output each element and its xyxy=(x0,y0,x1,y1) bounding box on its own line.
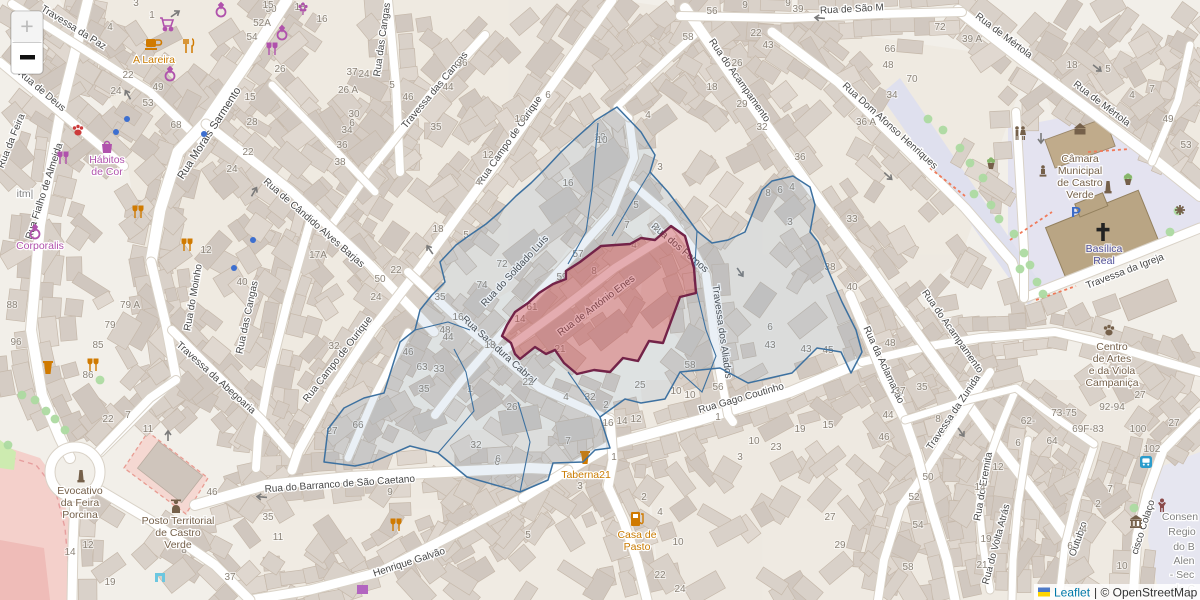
svg-text:Corporalis: Corporalis xyxy=(16,240,64,252)
svg-text:49: 49 xyxy=(152,82,164,93)
svg-text:3: 3 xyxy=(577,481,583,492)
svg-text:24: 24 xyxy=(370,292,382,303)
svg-text:15: 15 xyxy=(262,0,274,11)
svg-text:35: 35 xyxy=(262,512,274,523)
svg-text:46: 46 xyxy=(878,432,890,443)
svg-text:3: 3 xyxy=(657,162,663,173)
svg-text:48: 48 xyxy=(884,338,896,349)
svg-text:88: 88 xyxy=(6,300,18,311)
svg-text:9: 9 xyxy=(742,0,748,11)
svg-text:4: 4 xyxy=(107,22,113,33)
svg-text:18: 18 xyxy=(1066,60,1078,71)
svg-text:54: 54 xyxy=(912,520,924,531)
svg-text:2: 2 xyxy=(1095,499,1101,510)
svg-text:12: 12 xyxy=(200,245,212,256)
svg-text:50: 50 xyxy=(374,274,386,285)
svg-text:58: 58 xyxy=(682,32,694,43)
svg-text:32: 32 xyxy=(328,341,340,352)
svg-text:Casa de: Casa de xyxy=(617,529,656,541)
svg-text:56: 56 xyxy=(712,382,724,393)
svg-text:Pasto: Pasto xyxy=(624,541,651,553)
svg-text:14: 14 xyxy=(974,482,986,493)
svg-text:33: 33 xyxy=(846,214,858,225)
svg-text:12: 12 xyxy=(482,150,494,161)
svg-text:26 A: 26 A xyxy=(338,85,358,96)
svg-text:39: 39 xyxy=(792,4,804,15)
svg-text:58: 58 xyxy=(902,562,914,573)
svg-text:22: 22 xyxy=(654,570,666,581)
svg-text:22: 22 xyxy=(122,70,134,81)
svg-text:Verde: Verde xyxy=(1066,189,1094,201)
svg-text:79 A: 79 A xyxy=(120,300,140,311)
svg-text:56: 56 xyxy=(706,6,718,17)
svg-text:100: 100 xyxy=(1130,424,1147,435)
svg-text:37: 37 xyxy=(894,386,906,397)
svg-text:64: 64 xyxy=(1046,436,1058,447)
svg-text:5: 5 xyxy=(389,80,395,91)
svg-text:6: 6 xyxy=(1015,438,1021,449)
svg-text:Leaflet: Leaflet xyxy=(1054,586,1091,600)
svg-text:16: 16 xyxy=(316,14,328,25)
svg-text:53: 53 xyxy=(1180,140,1192,151)
svg-text:do B: do B xyxy=(1173,541,1195,553)
svg-text:37: 37 xyxy=(346,67,358,78)
svg-text:| © OpenStreetMap: | © OpenStreetMap xyxy=(1094,586,1198,600)
svg-text:36: 36 xyxy=(794,152,806,163)
svg-text:22: 22 xyxy=(102,414,114,425)
svg-text:24: 24 xyxy=(358,69,370,80)
svg-text:Hábitos: Hábitos xyxy=(89,154,125,166)
svg-text:4: 4 xyxy=(645,110,651,121)
svg-text:37: 37 xyxy=(224,572,236,583)
svg-text:4: 4 xyxy=(1129,90,1135,101)
svg-text:92-94: 92-94 xyxy=(1099,402,1125,413)
svg-text:10: 10 xyxy=(684,390,696,401)
svg-text:Basílica: Basílica xyxy=(1086,243,1123,255)
svg-text:35: 35 xyxy=(916,382,928,393)
svg-text:86: 86 xyxy=(82,370,94,381)
svg-text:24: 24 xyxy=(674,584,686,595)
svg-text:62-: 62- xyxy=(1021,416,1035,427)
svg-text:19: 19 xyxy=(980,534,992,545)
svg-text:26: 26 xyxy=(274,64,286,75)
svg-text:39 A: 39 A xyxy=(962,34,982,45)
svg-text:11: 11 xyxy=(143,424,154,435)
svg-text:- Sec: - Sec xyxy=(1170,569,1195,581)
svg-text:7: 7 xyxy=(1107,484,1113,495)
svg-text:21: 21 xyxy=(976,560,988,571)
svg-text:32: 32 xyxy=(756,122,768,133)
svg-text:46: 46 xyxy=(402,92,414,103)
svg-text:12: 12 xyxy=(630,414,642,425)
svg-text:7: 7 xyxy=(1149,84,1155,95)
svg-text:de Castro: de Castro xyxy=(155,527,201,539)
svg-text:itm|: itm| xyxy=(17,188,34,200)
svg-text:24: 24 xyxy=(226,164,238,175)
svg-text:29: 29 xyxy=(834,540,846,551)
svg-text:44: 44 xyxy=(442,82,454,93)
svg-text:17A: 17A xyxy=(309,250,327,261)
svg-text:5: 5 xyxy=(525,530,531,541)
svg-text:Municipal: Municipal xyxy=(1058,165,1102,177)
svg-text:3: 3 xyxy=(737,452,743,463)
svg-text:72: 72 xyxy=(934,22,946,33)
svg-text:26: 26 xyxy=(731,58,743,69)
svg-text:50: 50 xyxy=(922,472,934,483)
svg-text:Regio: Regio xyxy=(1168,526,1196,538)
svg-text:Porcina: Porcina xyxy=(62,509,98,521)
svg-text:2: 2 xyxy=(641,492,647,503)
svg-text:96: 96 xyxy=(10,337,22,348)
svg-text:28: 28 xyxy=(246,117,258,128)
svg-text:52A: 52A xyxy=(253,18,271,29)
svg-text:P: P xyxy=(1071,204,1081,221)
svg-text:+: + xyxy=(20,13,33,39)
svg-text:66: 66 xyxy=(884,44,896,55)
svg-text:de Castro: de Castro xyxy=(1057,177,1103,189)
svg-text:53: 53 xyxy=(142,98,154,109)
svg-text:79: 79 xyxy=(104,320,116,331)
svg-text:102: 102 xyxy=(1144,444,1161,455)
svg-text:11: 11 xyxy=(273,532,284,543)
svg-text:5: 5 xyxy=(1105,64,1111,75)
svg-text:9: 9 xyxy=(785,0,791,9)
svg-text:6: 6 xyxy=(1067,541,1073,552)
svg-text:36 A: 36 A xyxy=(856,117,876,128)
svg-text:Campaniça: Campaniça xyxy=(1085,377,1138,389)
svg-text:6: 6 xyxy=(349,118,355,129)
svg-text:Posto Territorial: Posto Territorial xyxy=(142,515,215,527)
svg-text:52: 52 xyxy=(908,492,920,503)
svg-text:46: 46 xyxy=(206,487,218,498)
svg-text:14: 14 xyxy=(616,416,628,427)
svg-text:40: 40 xyxy=(236,277,248,288)
svg-text:18: 18 xyxy=(706,82,718,93)
svg-text:12: 12 xyxy=(992,462,1004,473)
svg-text:38: 38 xyxy=(334,157,346,168)
svg-text:43: 43 xyxy=(762,40,774,51)
svg-text:Câmara: Câmara xyxy=(1061,153,1099,165)
svg-text:85: 85 xyxy=(92,340,104,351)
svg-text:18: 18 xyxy=(432,224,444,235)
svg-text:1: 1 xyxy=(715,412,721,423)
svg-text:10: 10 xyxy=(672,537,684,548)
svg-text:Alen: Alen xyxy=(1173,555,1194,567)
svg-text:14: 14 xyxy=(64,547,76,558)
svg-text:27: 27 xyxy=(824,512,836,523)
svg-text:22: 22 xyxy=(242,147,254,158)
svg-text:27: 27 xyxy=(1168,418,1180,429)
svg-text:A Lareira: A Lareira xyxy=(133,54,175,66)
svg-text:35: 35 xyxy=(430,122,442,133)
svg-text:Consen: Consen xyxy=(1162,511,1198,523)
svg-text:4: 4 xyxy=(1081,524,1087,535)
svg-text:73-75: 73-75 xyxy=(1051,408,1077,419)
svg-text:29: 29 xyxy=(736,99,748,110)
svg-text:de Cor: de Cor xyxy=(91,166,123,178)
svg-text:4: 4 xyxy=(657,507,663,518)
svg-text:22: 22 xyxy=(390,265,402,276)
svg-text:Verde: Verde xyxy=(164,539,192,551)
svg-text:da Feira: da Feira xyxy=(61,497,100,509)
svg-text:e da Viola: e da Viola xyxy=(1089,365,1136,377)
svg-text:15: 15 xyxy=(244,92,256,103)
svg-text:22: 22 xyxy=(750,28,762,39)
svg-text:54: 54 xyxy=(246,32,258,43)
svg-text:Centro: Centro xyxy=(1096,341,1128,353)
svg-text:12: 12 xyxy=(82,540,94,551)
svg-text:24: 24 xyxy=(110,86,122,97)
svg-text:40: 40 xyxy=(846,282,858,293)
svg-text:49: 49 xyxy=(1162,114,1174,125)
svg-text:3: 3 xyxy=(133,0,139,9)
svg-text:19: 19 xyxy=(794,424,806,435)
svg-text:48: 48 xyxy=(882,60,894,71)
svg-text:27: 27 xyxy=(1134,390,1146,401)
svg-text:23: 23 xyxy=(770,442,782,453)
svg-text:Real: Real xyxy=(1093,255,1115,267)
svg-text:19: 19 xyxy=(104,577,116,588)
svg-text:15: 15 xyxy=(822,420,834,431)
svg-text:de Artes: de Artes xyxy=(1093,353,1132,365)
svg-text:10: 10 xyxy=(1116,561,1128,572)
svg-text:1: 1 xyxy=(611,452,617,463)
svg-text:Evocativo: Evocativo xyxy=(57,485,103,497)
svg-text:1: 1 xyxy=(149,10,155,21)
svg-text:10: 10 xyxy=(514,114,526,125)
svg-text:4: 4 xyxy=(475,177,481,188)
svg-text:8: 8 xyxy=(935,414,941,425)
svg-text:70: 70 xyxy=(906,74,918,85)
svg-text:36: 36 xyxy=(336,140,348,151)
svg-text:44: 44 xyxy=(882,410,894,421)
svg-text:9: 9 xyxy=(387,487,393,498)
svg-text:10: 10 xyxy=(748,436,760,447)
svg-text:68: 68 xyxy=(170,120,182,131)
svg-text:69F-83: 69F-83 xyxy=(1072,424,1104,435)
svg-text:10: 10 xyxy=(670,386,682,397)
svg-text:Taberna21: Taberna21 xyxy=(561,469,611,481)
svg-text:6: 6 xyxy=(545,90,551,101)
svg-text:16: 16 xyxy=(602,418,614,429)
svg-text:7: 7 xyxy=(125,410,131,421)
svg-text:34: 34 xyxy=(886,90,898,101)
svg-text:36: 36 xyxy=(456,58,468,69)
